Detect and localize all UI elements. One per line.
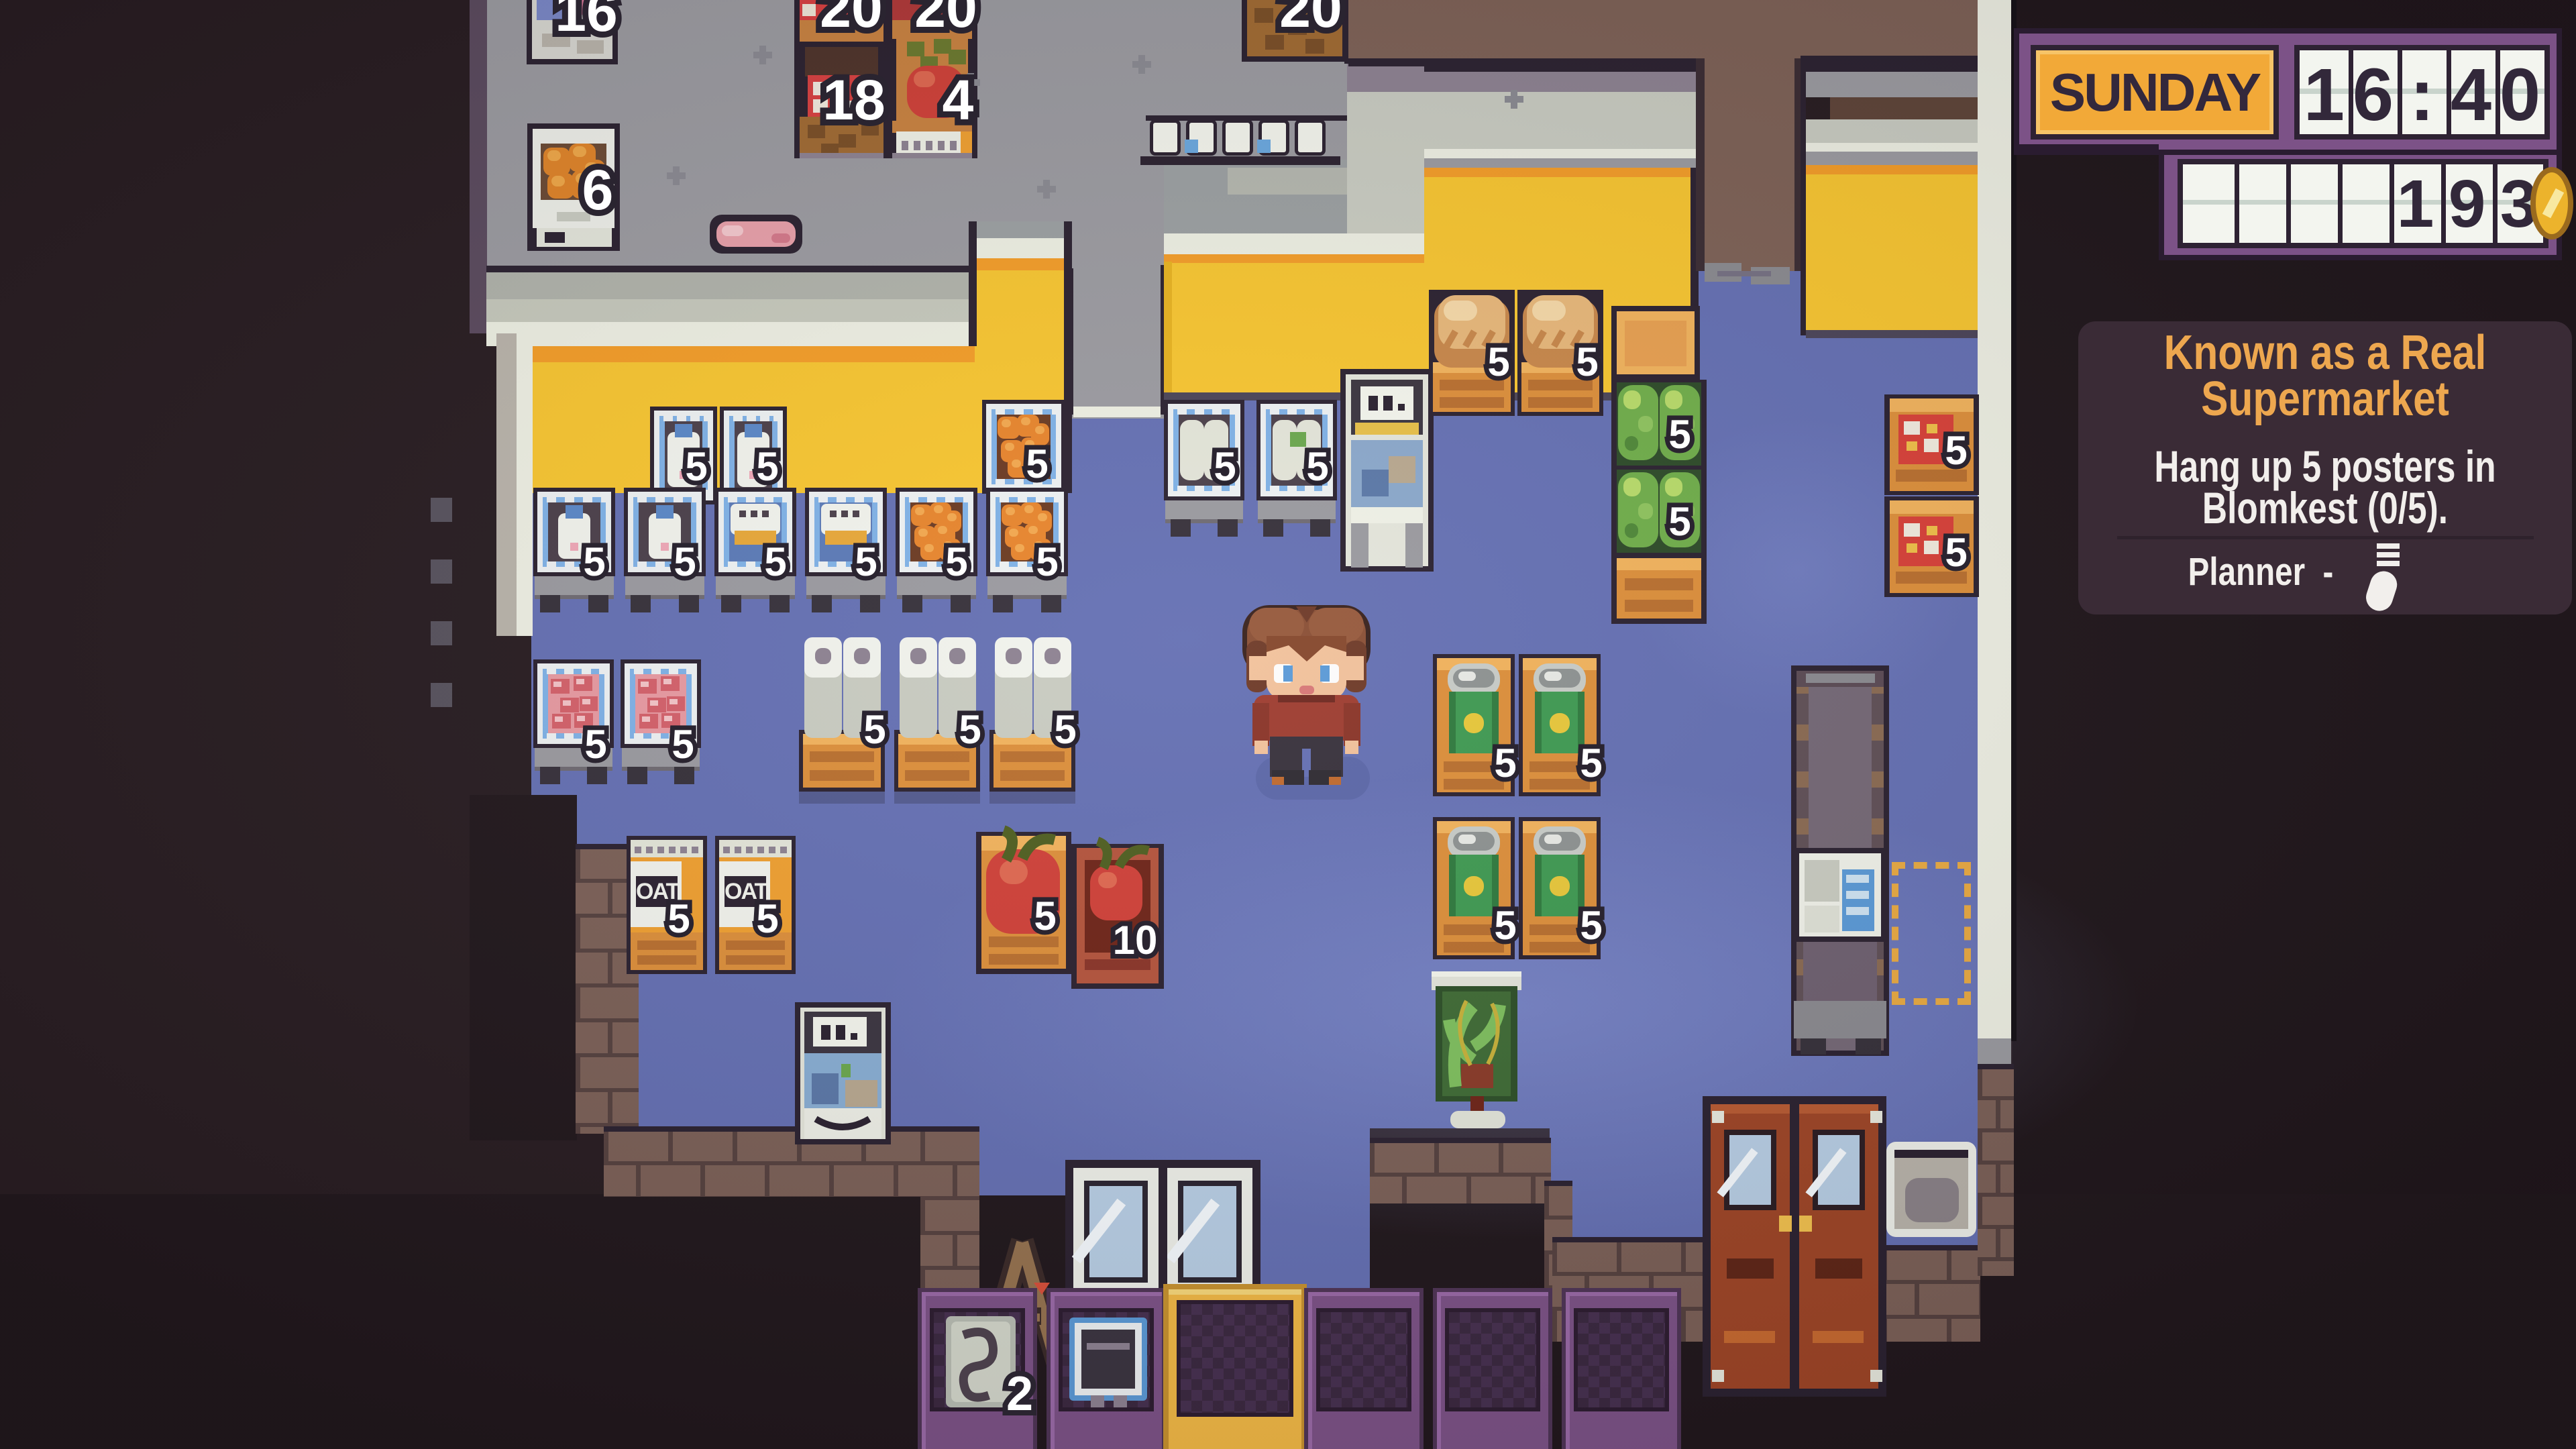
svg-text:5: 5 — [1034, 894, 1056, 938]
svg-text:5: 5 — [756, 896, 778, 941]
svg-text:5: 5 — [1494, 741, 1516, 786]
svg-text:5: 5 — [1306, 444, 1328, 489]
svg-text:5: 5 — [584, 722, 606, 767]
svg-text:5: 5 — [1494, 903, 1516, 948]
svg-text:20: 20 — [820, 0, 882, 39]
svg-text:5: 5 — [1580, 903, 1602, 948]
svg-text:5: 5 — [1487, 339, 1509, 384]
svg-text:5: 5 — [1668, 499, 1690, 544]
svg-text:5: 5 — [959, 707, 981, 752]
svg-text:5: 5 — [863, 707, 885, 752]
svg-text:5: 5 — [1026, 441, 1048, 486]
svg-text:5: 5 — [672, 722, 694, 767]
svg-text:5: 5 — [855, 539, 877, 584]
svg-text:6: 6 — [582, 158, 614, 221]
svg-text:5: 5 — [583, 539, 605, 584]
svg-text:10: 10 — [1113, 918, 1158, 963]
svg-text:5: 5 — [1214, 444, 1236, 489]
svg-text:5: 5 — [945, 539, 967, 584]
svg-text:5: 5 — [1668, 412, 1690, 457]
svg-text:5: 5 — [1580, 741, 1602, 786]
svg-text:5: 5 — [685, 444, 707, 489]
svg-text:5: 5 — [1054, 707, 1076, 752]
svg-text:5: 5 — [1945, 530, 1967, 575]
svg-text:5: 5 — [756, 444, 778, 489]
svg-text:16: 16 — [555, 0, 617, 43]
svg-text:5: 5 — [1945, 428, 1967, 473]
svg-text:20: 20 — [914, 0, 977, 39]
svg-text:5: 5 — [674, 539, 696, 584]
svg-text:2: 2 — [1006, 1367, 1033, 1421]
svg-text:4: 4 — [943, 68, 974, 131]
svg-text:20: 20 — [1279, 0, 1342, 39]
svg-text:5: 5 — [1036, 539, 1058, 584]
svg-text:5: 5 — [1576, 339, 1598, 384]
svg-text:5: 5 — [764, 539, 786, 584]
svg-text:18: 18 — [822, 68, 885, 131]
svg-text:5: 5 — [667, 896, 690, 941]
